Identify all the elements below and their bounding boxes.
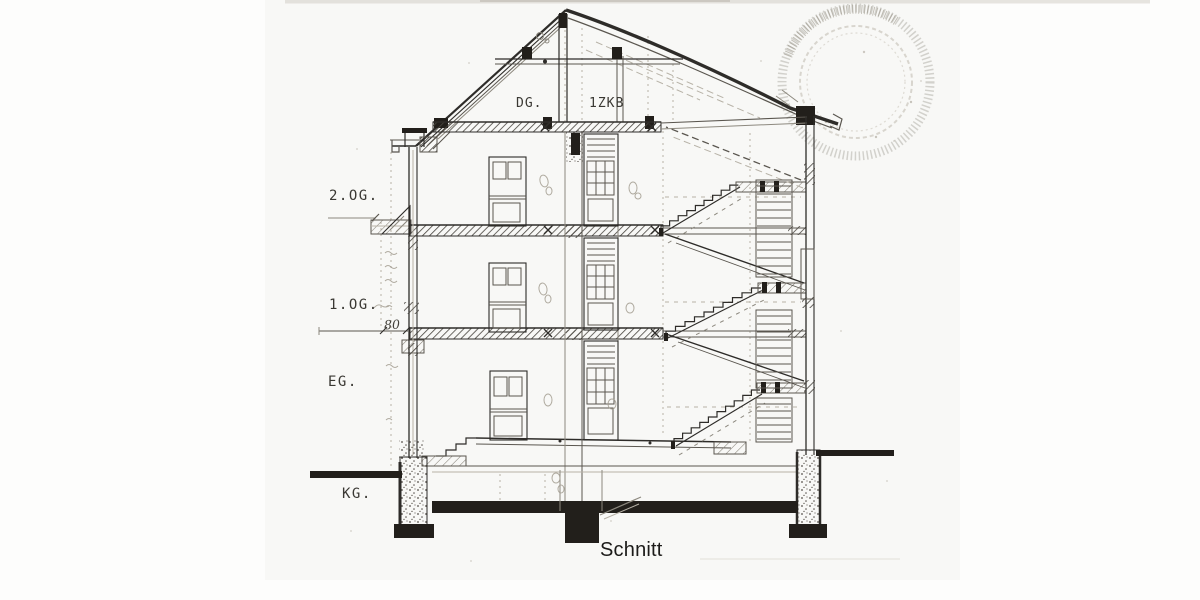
floor-label-dg: DG. — [516, 96, 542, 111]
section-drawing-linework — [0, 0, 1200, 600]
floor-label-eg: EG. — [328, 375, 358, 390]
attic-unit-label-1zkb: 1ZKB — [589, 96, 624, 111]
dimension-80: 80 — [384, 317, 401, 333]
floor-label-kg: KG. — [342, 487, 372, 502]
caption-schnitt: Schnitt — [600, 539, 663, 562]
scanned-section-drawing: DG. 1ZKB 2.OG. 1.OG. EG. KG. 80 Schnitt — [0, 0, 1200, 600]
floor-label-2og: 2.OG. — [329, 189, 379, 204]
floor-label-1og: 1.OG. — [329, 298, 379, 313]
